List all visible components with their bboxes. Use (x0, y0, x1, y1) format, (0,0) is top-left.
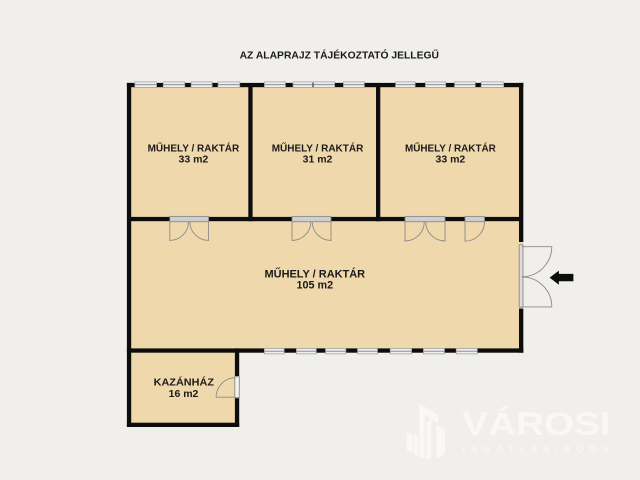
svg-text:MŰHELY / RAKTÁR: MŰHELY / RAKTÁR (148, 141, 240, 154)
svg-text:16 m2: 16 m2 (169, 388, 199, 400)
svg-text:KAZÁNHÁZ: KAZÁNHÁZ (154, 375, 215, 388)
svg-text:MŰHELY / RAKTÁR: MŰHELY / RAKTÁR (272, 141, 364, 154)
svg-text:AZ ALAPRAJZ TÁJÉKOZTATÓ JELLEG: AZ ALAPRAJZ TÁJÉKOZTATÓ JELLEGŰ (240, 48, 439, 61)
svg-text:105 m2: 105 m2 (296, 279, 333, 291)
svg-text:VÁROSI: VÁROSI (462, 405, 610, 442)
svg-text:33 m2: 33 m2 (436, 154, 466, 166)
svg-text:MŰHELY / RAKTÁR: MŰHELY / RAKTÁR (405, 141, 496, 154)
svg-text:31 m2: 31 m2 (303, 154, 333, 166)
svg-text:33 m2: 33 m2 (179, 154, 209, 166)
